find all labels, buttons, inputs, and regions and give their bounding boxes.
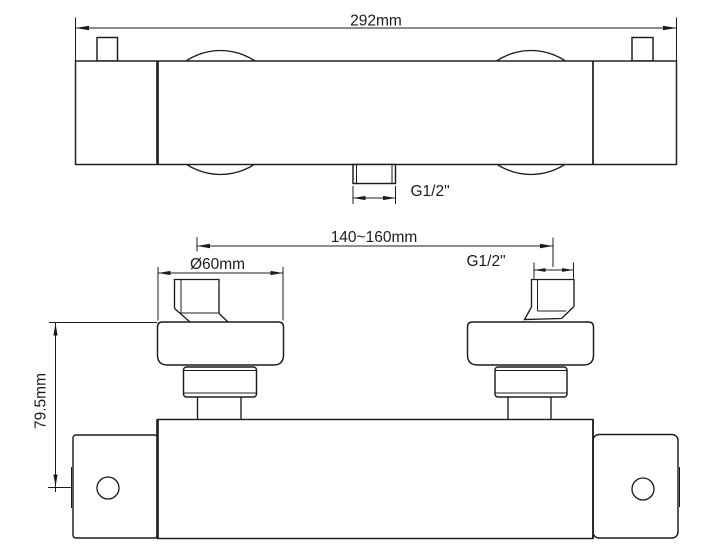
arrowhead-left [534,268,546,272]
mounting-tab-right [632,38,653,62]
drawing-svg: 292mm G1/2" [0,0,704,552]
inlet-thread-label: G1/2" [467,253,506,270]
nipple-chamfer-lines [175,309,229,323]
outlet-spout [353,165,396,184]
dimension-outlet-thread: G1/2" [353,183,450,204]
inlet-nipple-left [175,280,229,323]
connector-cylinder-left [184,367,257,397]
arrowhead-left [76,26,90,31]
mounting-tab-left [97,38,118,62]
extension-lines [158,267,283,321]
arrowhead-right [271,271,284,275]
arrowhead-left [353,196,366,200]
escutcheon-left [158,322,284,365]
outlet-thread-label: G1/2" [411,183,450,200]
arrowhead-left [197,244,210,248]
front-view: 140~160mm Ø60mm G1/2" 79.5mm [33,229,680,539]
connector-cylinder-right [495,367,567,397]
escutcheon-diameter-label: Ø60mm [190,256,245,273]
escutcheon-right [468,322,594,365]
nipple-chamfer-lines [525,307,575,320]
top-view: 292mm G1/2" [76,13,677,205]
inlet-centers-label: 140~160mm [331,229,418,246]
neck-left [198,397,242,420]
neck-right [508,397,551,420]
valve-body-top-view [76,61,677,165]
inlet-nipple-right [525,280,575,320]
technical-drawing-canvas: 292mm G1/2" [0,0,704,552]
valve-body-front-view [158,420,594,539]
dimension-overall-width: 292mm [76,13,677,61]
body-height-label: 79.5mm [33,373,50,429]
overall-width-label: 292mm [350,13,402,30]
arrowhead-right [663,26,677,31]
mounting-plate-left [73,435,158,538]
extension-lines [353,186,396,204]
mounting-plate-right [593,435,678,539]
arrowhead-top [53,323,57,336]
nipple-inner-lines [538,280,567,311]
arrowhead-left [158,271,171,275]
dimension-inlet-thread: G1/2" [467,253,574,279]
arrowhead-right [562,268,574,272]
nipple-inner-lines [181,280,219,313]
arrowhead-bottom [53,475,57,488]
arrowhead-right [540,244,553,248]
arrowhead-right [383,196,396,200]
